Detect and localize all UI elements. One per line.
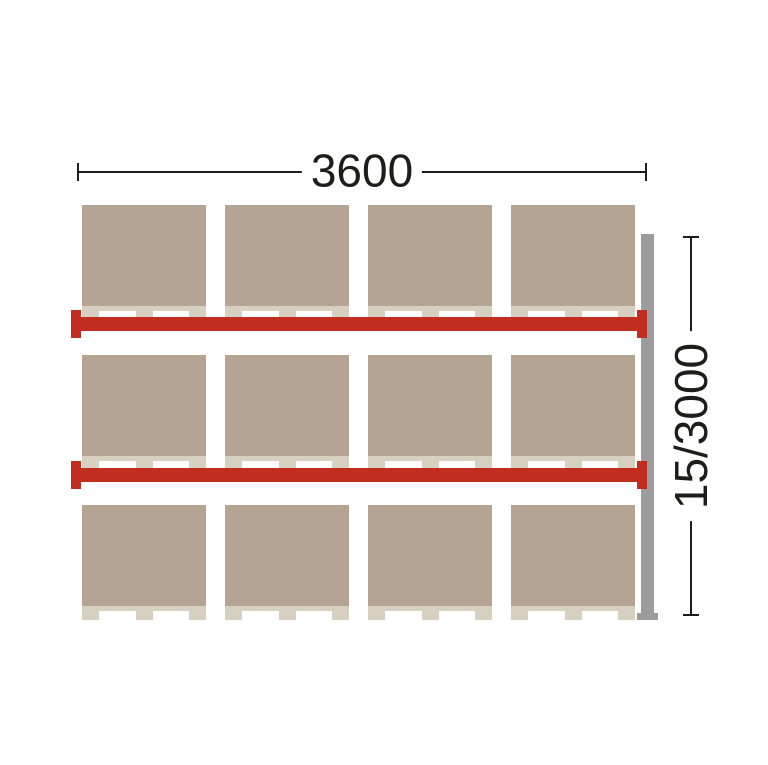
pallet-unit [225,355,349,470]
pallet-foot [565,611,582,620]
pallet-load-box [511,205,635,306]
pallet-unit [511,205,635,320]
pallet-foot [511,611,528,620]
pallet-load-box [225,505,349,606]
pallet-foot [332,611,349,620]
beam-level-1 [71,310,647,338]
pallet-load-box [82,205,206,306]
pallet-unit [225,505,349,620]
pallet-foot [422,611,439,620]
height-dimension-tick-top [683,236,699,238]
pallet-foot [225,611,242,620]
beam-rail [75,468,643,482]
width-dimension-label: 3600 [302,148,422,194]
width-dimension-tick-right [645,163,647,181]
width-dimension: 3600 [77,163,647,181]
pallet-load-box [511,505,635,606]
pallet-foot [136,611,153,620]
pallet-unit [225,205,349,320]
pallet-unit [82,355,206,470]
pallet-load-box [511,355,635,456]
pallet-foot [475,611,492,620]
pallet-unit [368,205,492,320]
height-dimension-label: 15/3000 [668,331,714,521]
pallet-unit [368,355,492,470]
pallet-unit [511,505,635,620]
pallet-foot [189,611,206,620]
beam-end-cap-left [71,310,81,338]
pallet-foot [368,611,385,620]
upright-baseplate [637,613,658,620]
beam-rail [75,317,643,331]
pallet-unit [511,355,635,470]
pallet-unit [82,205,206,320]
pallet-rack-diagram: 3600 [0,0,768,765]
pallet-foot [618,611,635,620]
pallet-load-box [368,505,492,606]
upright-post [641,234,654,614]
pallet-load-box [368,205,492,306]
height-dimension: 15/3000 [682,236,700,616]
beam-end-cap-right [637,310,647,338]
width-dimension-tick-left [77,163,79,181]
pallet-load-box [225,355,349,456]
height-dimension-tick-bottom [683,614,699,616]
pallet-load-box [368,355,492,456]
pallet-foot [279,611,296,620]
pallet-load-box [82,505,206,606]
pallet-unit [82,505,206,620]
beam-end-cap-right [637,461,647,489]
pallet-foot [82,611,99,620]
pallet-unit [368,505,492,620]
beam-level-2 [71,461,647,489]
pallet-load-box [82,355,206,456]
pallet-load-box [225,205,349,306]
beam-end-cap-left [71,461,81,489]
